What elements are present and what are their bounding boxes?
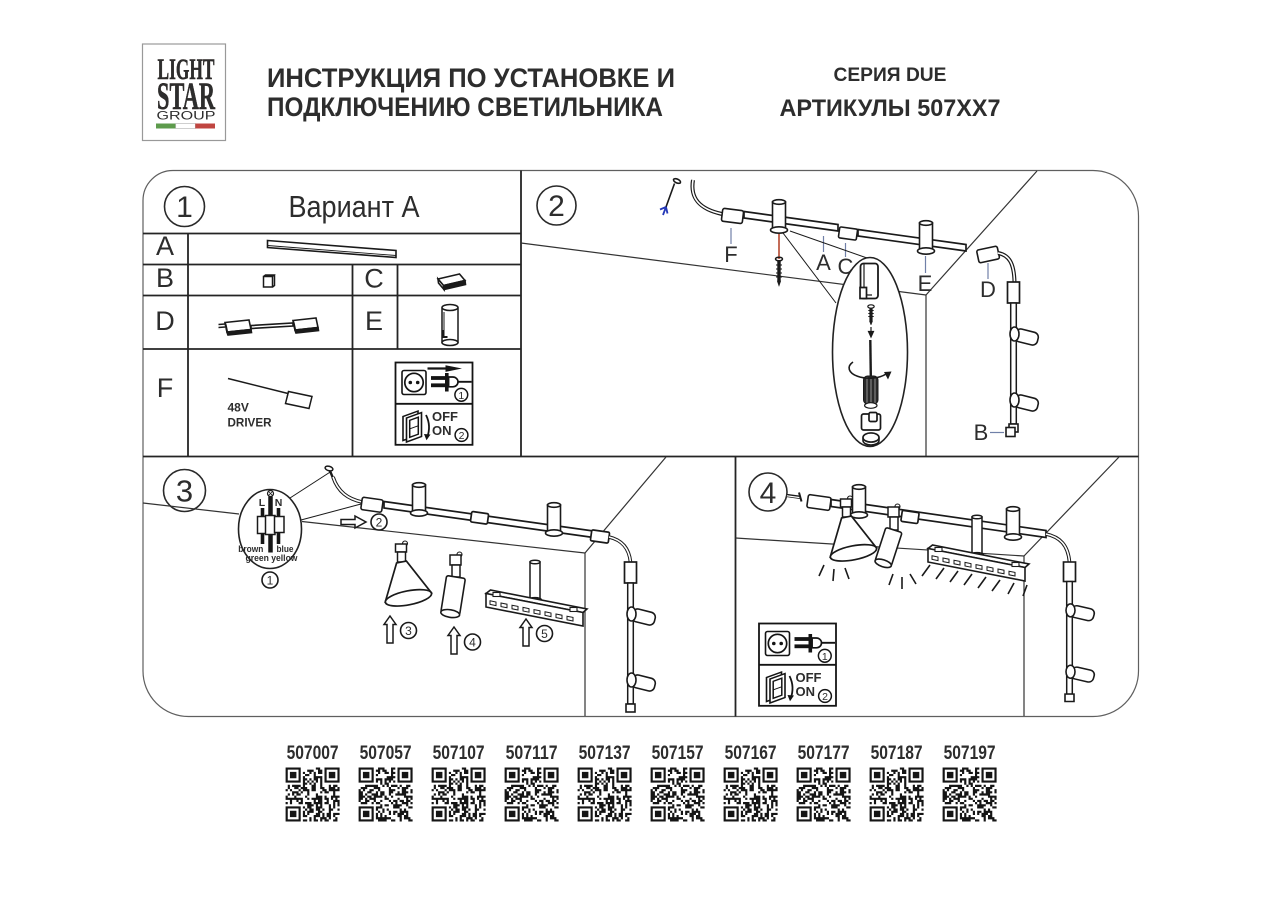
svg-text:A: A (156, 231, 174, 261)
svg-text:F: F (157, 373, 174, 403)
svg-text:4: 4 (469, 635, 476, 649)
svg-text:C: C (364, 264, 384, 294)
svg-text:Вариант А: Вариант А (289, 189, 420, 224)
svg-text:507107: 507107 (433, 742, 485, 764)
svg-text:5: 5 (541, 627, 548, 641)
svg-text:B: B (974, 420, 989, 445)
svg-text:L: L (259, 497, 266, 509)
svg-text:2: 2 (548, 190, 565, 223)
svg-text:N: N (275, 497, 283, 509)
svg-text:507187: 507187 (871, 742, 923, 764)
svg-text:GROUP: GROUP (157, 111, 216, 123)
svg-text:507197: 507197 (944, 742, 996, 764)
svg-text:D: D (155, 306, 175, 336)
svg-text:1: 1 (176, 191, 193, 224)
svg-text:1: 1 (267, 573, 274, 587)
svg-text:ПОДКЛЮЧЕНИЮ СВЕТИЛЬНИКА: ПОДКЛЮЧЕНИЮ СВЕТИЛЬНИКА (267, 92, 663, 122)
svg-text:A: A (816, 250, 831, 275)
svg-text:507137: 507137 (579, 742, 631, 764)
svg-text:2: 2 (376, 515, 383, 529)
svg-text:АРТИКУЛЫ 507ХХ7: АРТИКУЛЫ 507ХХ7 (780, 95, 1001, 122)
svg-text:507167: 507167 (725, 742, 777, 764)
svg-text:3: 3 (405, 624, 412, 638)
svg-text:D: D (980, 277, 996, 302)
svg-text:ИНСТРУКЦИЯ ПО УСТАНОВКЕ И: ИНСТРУКЦИЯ ПО УСТАНОВКЕ И (267, 63, 675, 93)
svg-text:DRIVER: DRIVER (228, 416, 272, 430)
svg-text:507007: 507007 (287, 742, 339, 764)
svg-text:E: E (365, 306, 383, 336)
svg-text:507057: 507057 (360, 742, 412, 764)
svg-text:3: 3 (176, 474, 193, 509)
svg-text:4: 4 (760, 477, 777, 510)
svg-text:507177: 507177 (798, 742, 850, 764)
svg-text:48V: 48V (228, 401, 249, 415)
svg-text:СЕРИЯ DUE: СЕРИЯ DUE (834, 65, 947, 86)
svg-text:F: F (724, 242, 737, 267)
svg-text:507117: 507117 (506, 742, 558, 764)
svg-text:B: B (156, 263, 174, 293)
svg-text:green yellow: green yellow (246, 553, 299, 563)
svg-text:507157: 507157 (652, 742, 704, 764)
svg-text:E: E (918, 271, 933, 296)
